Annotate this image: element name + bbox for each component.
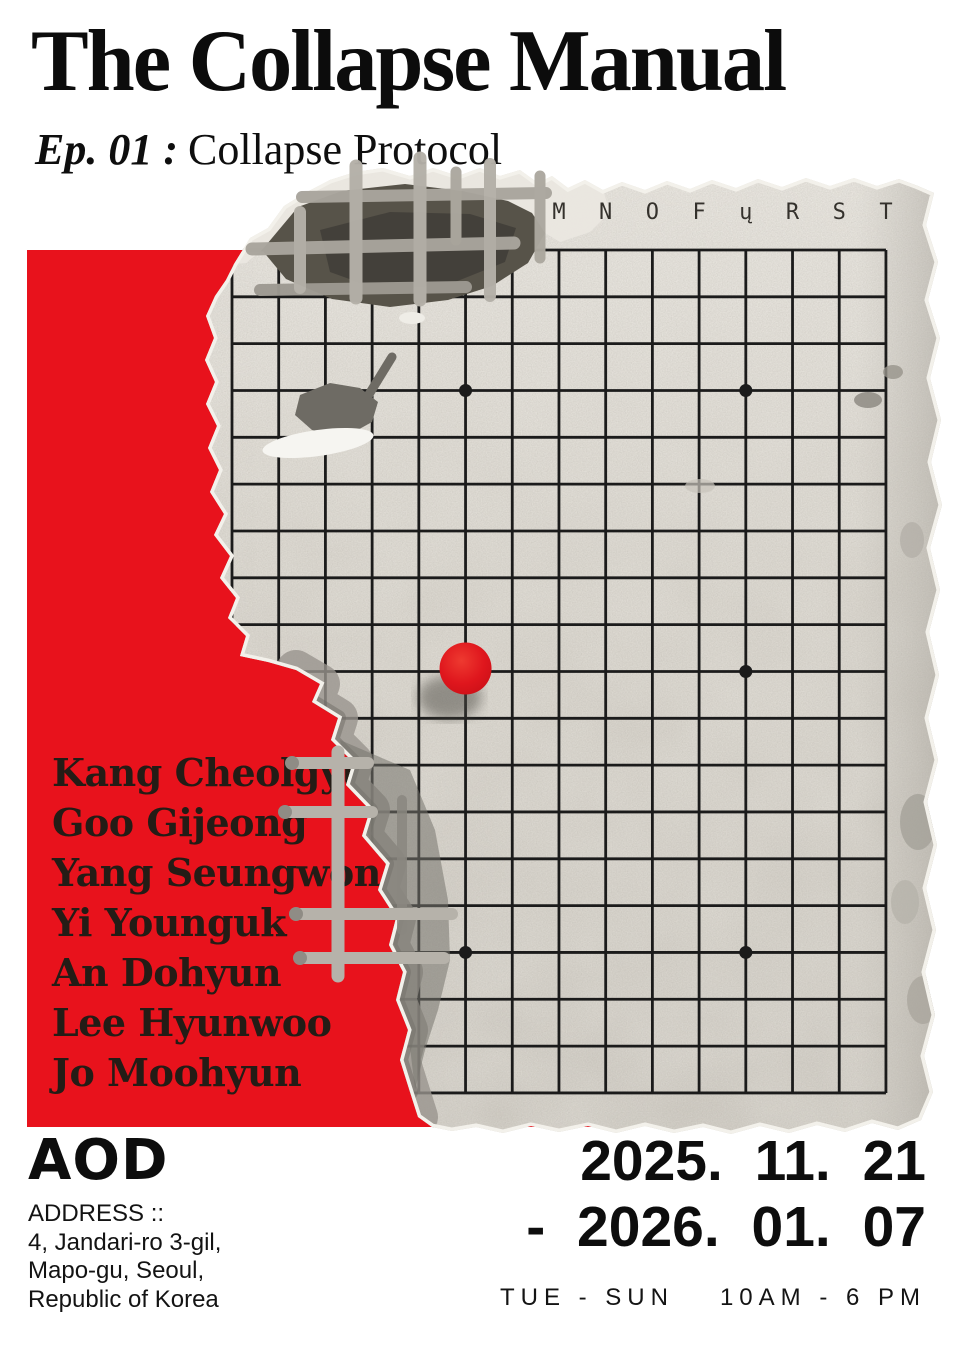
edge-rock — [900, 522, 924, 558]
edge-rock — [900, 794, 936, 850]
divot — [685, 479, 715, 493]
artist-name: Goo Gijeong — [52, 798, 381, 848]
debris — [854, 392, 882, 408]
episode-label: Ep. 01 : — [35, 125, 178, 174]
edge-rock — [907, 976, 939, 1024]
svg-text:F: F — [692, 200, 705, 225]
poster-subtitle: Ep. 01 :Collapse Protocol — [35, 124, 502, 175]
gallery-logo: AOD — [28, 1128, 168, 1193]
svg-text:M: M — [552, 200, 565, 225]
exhibition-poster: The Collapse Manual Ep. 01 :Collapse Pro… — [0, 0, 954, 1348]
address-label: ADDRESS :: — [28, 1200, 221, 1229]
artist-name: Yang Seungwon — [52, 848, 381, 898]
svg-text:R: R — [786, 200, 800, 225]
debris — [883, 365, 903, 379]
address-lines: 4, Jandari-ro 3-gil,Mapo-gu, Seoul,Repub… — [28, 1229, 221, 1315]
opening-times: 10AM - 6 PM — [720, 1284, 926, 1312]
artist-name: An Dohyun — [52, 948, 381, 998]
svg-text:ų: ų — [739, 200, 752, 225]
svg-text:S: S — [833, 200, 846, 225]
artist-name: Yi Younguk — [52, 898, 381, 948]
artist-list: Kang CheolgyuGoo GijeongYang SeungwonYi … — [52, 748, 381, 1098]
artist-name: Lee Hyunwoo — [52, 998, 381, 1048]
artist-name: Jo Moohyun — [52, 1048, 381, 1098]
opening-hours: TUE - SUN 10AM - 6 PM — [500, 1284, 926, 1312]
svg-text:N: N — [599, 200, 612, 225]
poster-title: The Collapse Manual — [31, 10, 785, 112]
address-line: Mapo-gu, Seoul, — [28, 1257, 221, 1286]
exhibition-start-date: 2025. 11. 21 — [580, 1128, 926, 1194]
svg-text:T: T — [879, 200, 892, 225]
svg-text:O: O — [646, 200, 659, 225]
episode-title: Collapse Protocol — [188, 125, 502, 174]
address-line: 4, Jandari-ro 3-gil, — [28, 1229, 221, 1258]
exhibition-end-date: - 2026. 01. 07 — [526, 1194, 926, 1260]
edge-rock — [891, 880, 919, 924]
board-column-labels: MNOFųRST — [552, 200, 892, 225]
artist-name: Kang Cheolgyu — [52, 748, 381, 798]
address-block: ADDRESS :: 4, Jandari-ro 3-gil,Mapo-gu, … — [28, 1200, 221, 1314]
opening-days: TUE - SUN — [500, 1284, 674, 1312]
address-line: Republic of Korea — [28, 1286, 221, 1315]
